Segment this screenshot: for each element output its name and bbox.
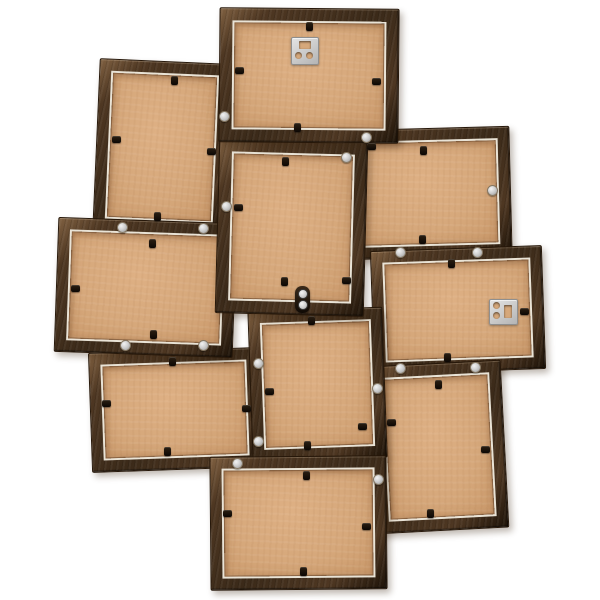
retainer-clip (300, 567, 307, 576)
rivet (470, 362, 481, 373)
retainer-clip (372, 78, 381, 85)
backing-center-portrait (230, 153, 353, 301)
connector-screw (298, 289, 308, 299)
retainer-clip (282, 157, 289, 166)
retainer-clip (448, 259, 455, 268)
hanger-slot (299, 41, 311, 49)
retainer-clip (435, 380, 442, 389)
retainer-clip (427, 509, 434, 518)
retainer-clip (294, 123, 301, 132)
retainer-clip (367, 143, 376, 150)
backing-right-middle-landscape (359, 140, 499, 246)
rivet (117, 222, 128, 233)
retainer-clip (481, 446, 490, 453)
retainer-clip (71, 285, 80, 292)
rivet (219, 111, 230, 122)
backing-bottom-right-portrait (383, 374, 494, 519)
frame-lowest-landscape (209, 455, 387, 591)
backing-lowest-landscape (224, 469, 374, 576)
retainer-clip (304, 441, 311, 450)
retainer-clip (223, 510, 232, 517)
retainer-clip (169, 357, 176, 366)
retainer-clip (150, 330, 157, 339)
hanger-hole (493, 312, 500, 319)
retainer-clip (419, 235, 426, 244)
rivet (395, 247, 406, 258)
rivet (221, 201, 232, 212)
retainer-clip (342, 277, 351, 284)
frame-bottom-left-landscape (88, 347, 262, 473)
rivet (373, 474, 384, 485)
frame-center-portrait (215, 138, 369, 317)
retainer-clip (303, 471, 310, 480)
top-hanger-icon (291, 37, 319, 65)
retainer-clip (420, 146, 427, 155)
hanger-slot (504, 305, 512, 318)
hanger-hole (306, 52, 313, 59)
rivet (120, 340, 131, 351)
rivet (472, 247, 483, 258)
retainer-clip (164, 447, 171, 456)
retainer-clip (242, 405, 251, 412)
right-hanger-icon (489, 299, 518, 325)
frame-bottom-center-portrait (247, 307, 387, 463)
connector-screw (298, 300, 308, 310)
retainer-clip (362, 523, 371, 530)
frame-joint-connector (295, 286, 310, 313)
retainer-clip (102, 400, 111, 407)
backing-bottom-left-landscape (102, 362, 247, 459)
retainer-clip (358, 423, 367, 430)
retainer-clip (234, 204, 243, 211)
retainer-clip (149, 239, 156, 248)
retainer-clip (281, 277, 288, 286)
retainer-clip (306, 22, 313, 31)
retainer-clip (265, 388, 274, 395)
rivet (341, 152, 352, 163)
rivet (372, 383, 383, 394)
retainer-clip (235, 67, 244, 74)
collage-frame-back-photo (0, 0, 600, 600)
rivet (198, 340, 209, 351)
rivet (487, 185, 498, 196)
rivet (198, 223, 209, 234)
retainer-clip (154, 212, 161, 221)
backing-upper-left-portrait (107, 73, 217, 221)
rivet (361, 132, 372, 143)
retainer-clip (308, 316, 315, 325)
hanger-hole (295, 52, 302, 59)
retainer-clip (520, 308, 529, 315)
hanger-hole (493, 302, 500, 309)
retainer-clip (387, 419, 396, 426)
backing-bottom-center-portrait (262, 321, 373, 448)
rivet (253, 358, 264, 369)
retainer-clip (207, 148, 216, 155)
frame-left-middle-landscape (54, 217, 238, 358)
rivet (232, 458, 243, 469)
retainer-clip (171, 76, 178, 85)
backing-left-middle-landscape (68, 231, 223, 343)
rivet (253, 436, 264, 447)
retainer-clip (444, 353, 451, 362)
retainer-clip (112, 136, 121, 143)
rivet (395, 363, 406, 374)
